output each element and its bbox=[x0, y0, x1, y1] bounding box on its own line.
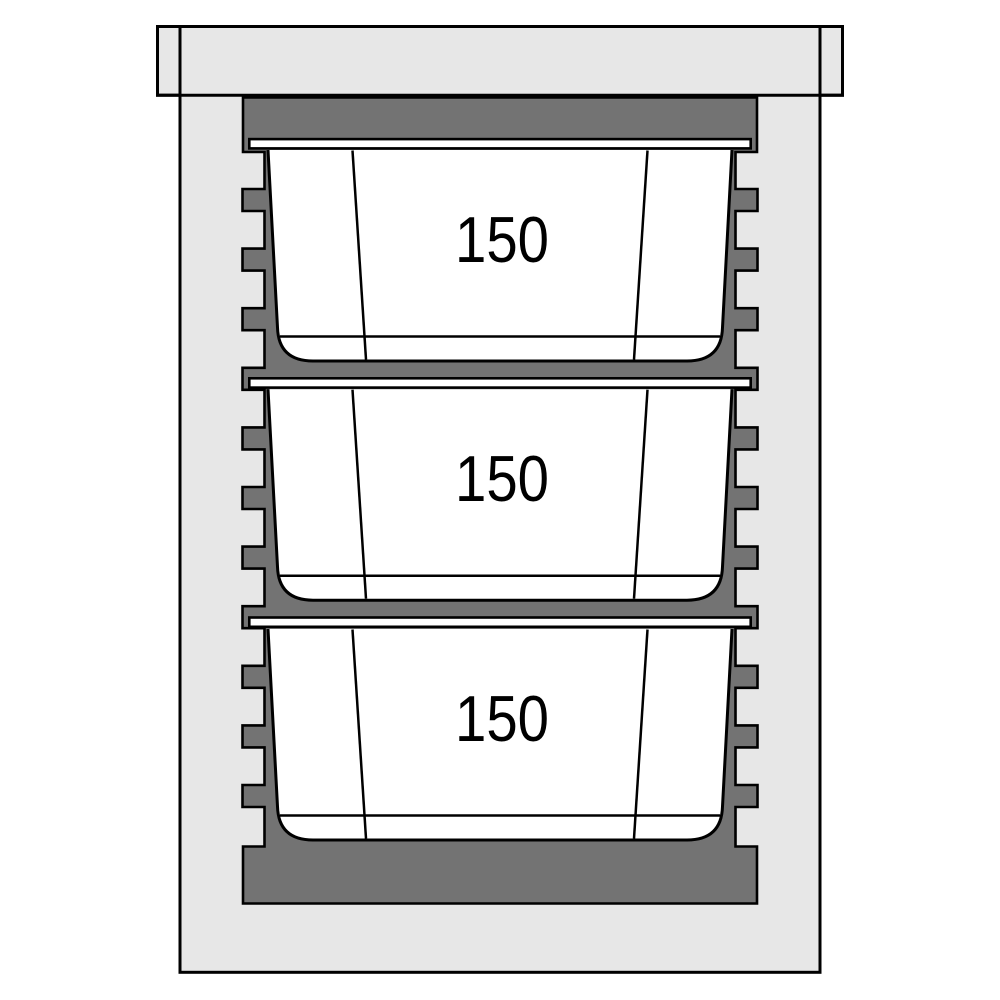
svg-text:150: 150 bbox=[455, 442, 549, 515]
svg-text:150: 150 bbox=[455, 682, 549, 755]
svg-text:150: 150 bbox=[455, 203, 549, 276]
